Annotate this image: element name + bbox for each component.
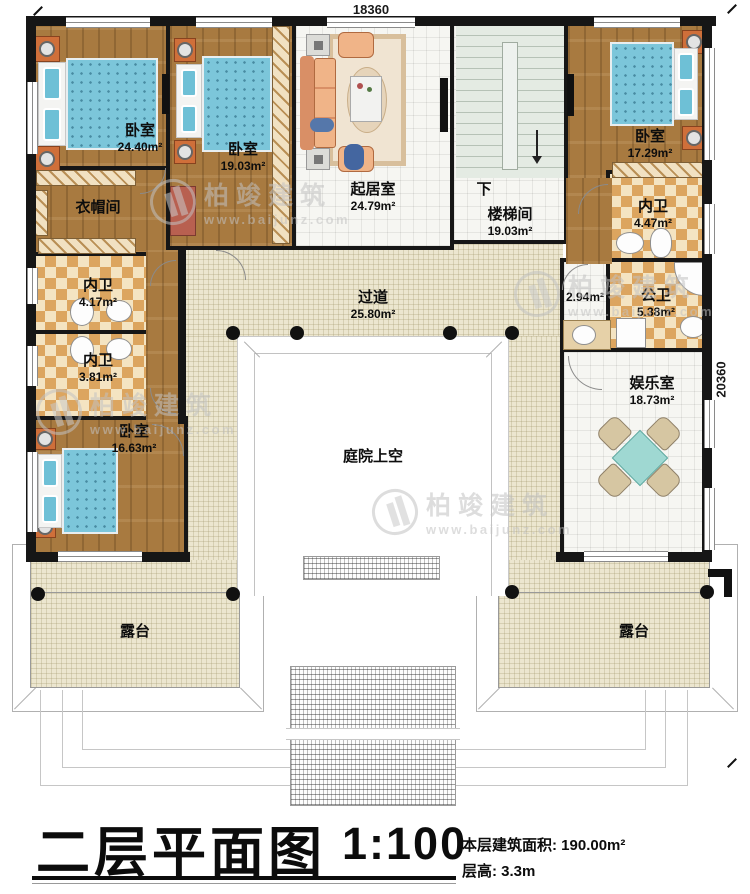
chimney-mark bbox=[724, 569, 732, 597]
skylight-hatch bbox=[303, 556, 440, 580]
room-area: 16.63m² bbox=[112, 441, 157, 455]
bed bbox=[202, 56, 272, 152]
room-area: 17.29m² bbox=[628, 146, 673, 160]
label-terrace-right: 露台 bbox=[619, 623, 649, 641]
column bbox=[505, 585, 519, 599]
label-corridor: 过道 25.80m² bbox=[351, 289, 396, 321]
tv bbox=[440, 78, 448, 132]
column bbox=[700, 585, 714, 599]
terrace-left bbox=[30, 552, 240, 688]
room-name: 起居室 bbox=[350, 181, 395, 199]
terrace-right-edge bbox=[498, 592, 710, 593]
bed-pillows bbox=[176, 64, 202, 138]
dresser bbox=[170, 186, 196, 236]
room-name: 过道 bbox=[351, 289, 396, 307]
label-bedroom2: 卧室 19.03m² bbox=[221, 141, 266, 173]
closet bbox=[612, 162, 704, 178]
closet bbox=[34, 190, 48, 236]
label-stair-down: 下 bbox=[476, 181, 491, 199]
coffee-table bbox=[350, 76, 382, 122]
room-area: 24.40m² bbox=[118, 140, 163, 154]
closet bbox=[38, 238, 136, 254]
label-stairwell: 楼梯间 19.03m² bbox=[487, 206, 532, 238]
person bbox=[310, 118, 334, 132]
room-name: 内卫 bbox=[634, 198, 672, 216]
sink bbox=[572, 325, 596, 345]
room-name: 娱乐室 bbox=[629, 375, 674, 393]
label-bath-right: 内卫 4.47m² bbox=[634, 198, 672, 230]
window bbox=[704, 488, 715, 550]
closet bbox=[36, 170, 136, 186]
terrace-left-edge bbox=[30, 592, 240, 593]
dim-tick bbox=[727, 4, 737, 14]
floor-plan: 卧室 24.40m² 衣帽间 卧室 19.03m² 起居室 24.79m² 下 … bbox=[0, 0, 750, 894]
room-name: 内卫 bbox=[79, 352, 117, 370]
courtyard-miter bbox=[486, 341, 502, 357]
bed-pillows bbox=[674, 48, 698, 120]
label-nook-area: 2.94m² bbox=[566, 290, 604, 304]
person bbox=[344, 144, 364, 170]
washing-machine bbox=[616, 318, 646, 348]
label-entertainment: 娱乐室 18.73m² bbox=[629, 375, 674, 407]
corridor-right bbox=[506, 336, 563, 560]
roof-hatch-gap bbox=[286, 728, 460, 740]
label-public-bath: 公卫 5.38m² bbox=[637, 287, 675, 319]
bed-pillows bbox=[38, 62, 66, 146]
plan-floor-area: 本层建筑面积: 190.00m² bbox=[462, 834, 625, 855]
column bbox=[31, 587, 45, 601]
room-area: 2.94m² bbox=[566, 290, 604, 304]
room-area: 5.38m² bbox=[637, 305, 675, 319]
room-area: 19.03m² bbox=[487, 224, 532, 238]
stair-arrow-line bbox=[536, 130, 538, 158]
nightstand bbox=[34, 36, 60, 62]
room-area: 4.47m² bbox=[634, 216, 672, 230]
courtyard-miter bbox=[244, 341, 260, 357]
nightstand bbox=[174, 140, 196, 164]
toilet bbox=[650, 228, 672, 258]
side-table bbox=[306, 34, 330, 56]
window bbox=[58, 551, 142, 562]
nightstand bbox=[174, 38, 196, 62]
window bbox=[27, 268, 38, 304]
window bbox=[704, 48, 715, 160]
room-name: 衣帽间 bbox=[75, 199, 120, 217]
label-bedroom1: 卧室 24.40m² bbox=[118, 122, 163, 154]
window bbox=[27, 452, 38, 532]
column bbox=[226, 326, 240, 340]
window bbox=[27, 82, 38, 154]
window bbox=[584, 551, 668, 562]
room-area: 24.79m² bbox=[350, 199, 395, 213]
room-area: 19.03m² bbox=[221, 159, 266, 173]
dimension-top: 18360 bbox=[330, 2, 412, 17]
room-area: 18.73m² bbox=[629, 393, 674, 407]
room-name: 卧室 bbox=[112, 423, 157, 441]
wall-hall-left bbox=[178, 248, 186, 424]
stair-arrow-head bbox=[532, 156, 542, 164]
label-terrace-left: 露台 bbox=[120, 623, 150, 641]
label-bath-left1: 内卫 4.17m² bbox=[79, 277, 117, 309]
room-name: 卧室 bbox=[118, 122, 163, 140]
room-name: 卧室 bbox=[221, 141, 266, 159]
sink bbox=[616, 232, 644, 254]
room-area: 3.81m² bbox=[79, 370, 117, 384]
tv bbox=[567, 74, 574, 116]
sofa-cushions bbox=[314, 58, 336, 148]
bed bbox=[610, 42, 674, 126]
dim-tick bbox=[727, 758, 737, 768]
label-bath-left2: 内卫 3.81m² bbox=[79, 352, 117, 384]
bed bbox=[62, 448, 118, 534]
label-cloakroom: 衣帽间 bbox=[75, 199, 120, 217]
label-living: 起居室 24.79m² bbox=[350, 181, 395, 213]
title-underline-thin bbox=[32, 883, 456, 884]
label-bedroom3: 卧室 17.29m² bbox=[628, 128, 673, 160]
stair-rail bbox=[502, 42, 518, 170]
column bbox=[443, 326, 457, 340]
room-name: 楼梯间 bbox=[487, 206, 532, 224]
room-area: 4.17m² bbox=[79, 295, 117, 309]
room-name: 庭院上空 bbox=[343, 448, 403, 466]
closet bbox=[272, 26, 290, 244]
nightstand bbox=[34, 428, 56, 450]
label-courtyard: 庭院上空 bbox=[343, 448, 403, 466]
corridor-left bbox=[183, 336, 240, 560]
title-underline bbox=[32, 876, 456, 880]
room-name: 卧室 bbox=[628, 128, 673, 146]
armchair bbox=[338, 32, 374, 58]
window bbox=[704, 204, 715, 254]
window bbox=[66, 17, 150, 28]
window bbox=[196, 17, 272, 28]
dimension-right: 20360 bbox=[714, 349, 729, 411]
room-name: 内卫 bbox=[79, 277, 117, 295]
room-name: 露台 bbox=[120, 623, 150, 641]
room-area: 25.80m² bbox=[351, 307, 396, 321]
plan-floor-height: 层高: 3.3m bbox=[462, 860, 535, 881]
window bbox=[327, 17, 415, 28]
label-bedroom4: 卧室 16.63m² bbox=[112, 423, 157, 455]
terrace-right bbox=[498, 552, 710, 688]
sofa-back bbox=[300, 56, 314, 150]
bed-pillows bbox=[38, 454, 62, 528]
side-table bbox=[306, 148, 330, 170]
stairs bbox=[456, 24, 564, 178]
column bbox=[290, 326, 304, 340]
tv bbox=[162, 74, 169, 114]
window bbox=[27, 346, 38, 386]
room-name: 公卫 bbox=[637, 287, 675, 305]
room-name: 露台 bbox=[619, 623, 649, 641]
window bbox=[594, 17, 680, 28]
column bbox=[505, 326, 519, 340]
dim-tick bbox=[33, 6, 43, 16]
column bbox=[226, 587, 240, 601]
stair-down: 下 bbox=[476, 181, 491, 199]
plan-scale: 1:100 bbox=[342, 818, 467, 870]
